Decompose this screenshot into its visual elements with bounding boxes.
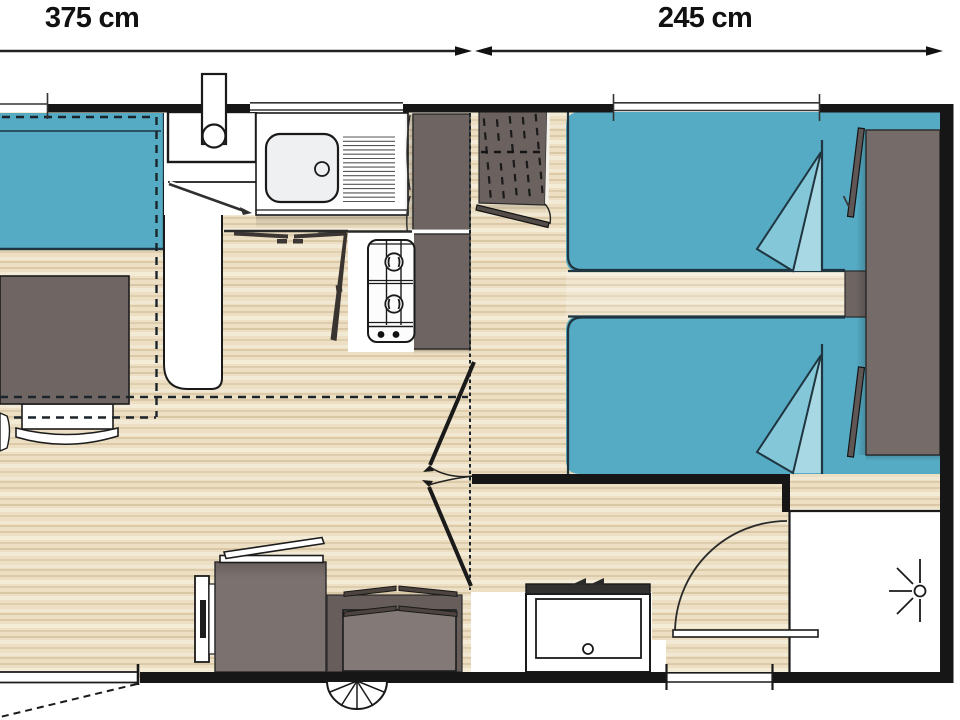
- svg-text:245 cm: 245 cm: [658, 2, 752, 34]
- svg-text:375 cm: 375 cm: [45, 2, 139, 34]
